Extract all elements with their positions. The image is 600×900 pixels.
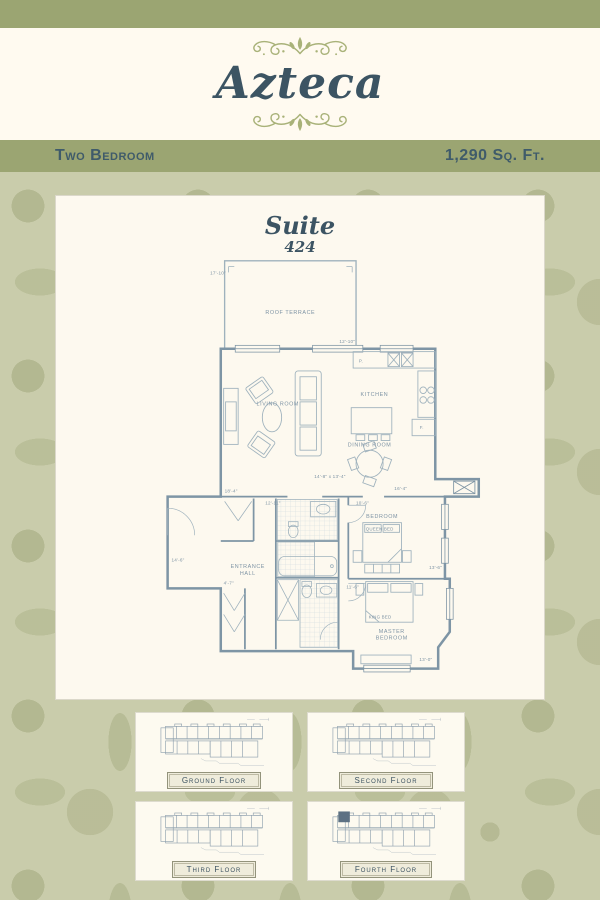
dim-terrace-width: 17'-10" xyxy=(210,270,226,275)
dim-master-depth: 13'-0" xyxy=(419,657,432,662)
suite-title: Suite 424 xyxy=(265,214,335,255)
floor-label-second: Second Floor xyxy=(339,772,432,789)
label-queen-bed: QUEEN BED xyxy=(366,526,394,531)
dim-master-width: 11'-6" xyxy=(346,584,359,589)
room-label-dining: DINING ROOM xyxy=(348,442,392,448)
room-label-living: LIVING ROOM xyxy=(257,402,299,408)
floor-label-ground: Ground Floor xyxy=(167,772,261,789)
dim-living-side: 18'-4" xyxy=(225,489,238,494)
dim-hall-width: 4'-7" xyxy=(224,581,234,586)
dim-shaft-side: 16'-4" xyxy=(394,486,407,491)
room-label-entrance-2: HALL xyxy=(240,571,256,577)
suite-plan-card: Suite 424 17'-10" ROOF TERRACE 12'-10" xyxy=(55,195,545,700)
dim-bedroom-width: 10'-6" xyxy=(356,500,369,505)
shaft-boxes xyxy=(454,481,475,494)
dim-bedroom-depth: 13'-6" xyxy=(429,565,442,570)
room-label-kitchen: KITCHEN xyxy=(361,392,389,398)
top-accent-strip xyxy=(0,0,600,28)
dim-terrace-depth: 12'-10" xyxy=(339,339,355,344)
windows xyxy=(235,345,453,672)
brochure-page: Azteca Two Bedroom 1,290 Sq. Ft. Suite xyxy=(0,0,600,900)
masthead: Azteca xyxy=(0,28,600,140)
keyplan-card-fourth: Fourth Floor xyxy=(307,801,465,881)
dim-hall-side: 14'-6" xyxy=(171,557,184,562)
keyplan-drawing-ground xyxy=(138,714,290,774)
living-furniture xyxy=(224,371,322,458)
bathrooms xyxy=(277,499,337,647)
floor-keyplans: Ground Floor Second Floor Third Floor xyxy=(135,712,465,881)
roof-terrace: 17'-10" ROOF TERRACE 12'-10" xyxy=(210,261,356,349)
floor-label-fourth: Fourth Floor xyxy=(340,861,432,878)
suite-word: Suite xyxy=(265,214,335,238)
room-label-master-1: MASTER xyxy=(379,629,405,635)
highlighted-suite-424 xyxy=(338,811,350,822)
keyplan-drawing-fourth xyxy=(310,803,462,863)
keyplan-card-ground: Ground Floor xyxy=(135,712,293,792)
page-title: Azteca xyxy=(216,62,385,106)
master-furniture xyxy=(356,582,423,664)
flourish-ornament-bottom xyxy=(225,108,375,134)
room-label-entrance-1: ENTRANCE xyxy=(231,564,265,570)
dim-corridor: 12'-11" xyxy=(265,500,281,505)
label-pantry: P. xyxy=(359,358,363,363)
flourish-ornament-top xyxy=(225,34,375,60)
floorplan-drawing: 17'-10" ROOF TERRACE 12'-10" xyxy=(55,255,545,685)
label-fridge: F. xyxy=(420,425,424,430)
label-king-bed: KING BED xyxy=(369,614,392,619)
room-label-roof-terrace: ROOF TERRACE xyxy=(265,310,315,316)
room-label-bedroom: BEDROOM xyxy=(366,514,398,520)
suite-number: 424 xyxy=(265,240,335,255)
floor-label-third: Third Floor xyxy=(172,861,257,878)
spec-band: Two Bedroom 1,290 Sq. Ft. xyxy=(0,140,600,172)
room-label-master-2: BEDROOM xyxy=(376,636,408,642)
bedroom-count-label: Two Bedroom xyxy=(55,147,155,165)
keyplan-drawing-second xyxy=(310,714,462,774)
patterned-background: Suite 424 17'-10" ROOF TERRACE 12'-10" xyxy=(0,172,600,900)
keyplan-card-second: Second Floor xyxy=(307,712,465,792)
square-footage-label: 1,290 Sq. Ft. xyxy=(445,147,545,165)
keyplan-card-third: Third Floor xyxy=(135,801,293,881)
dim-living-dining: 14'-8" x 13'-4" xyxy=(314,474,346,479)
keyplan-drawing-third xyxy=(138,803,290,863)
